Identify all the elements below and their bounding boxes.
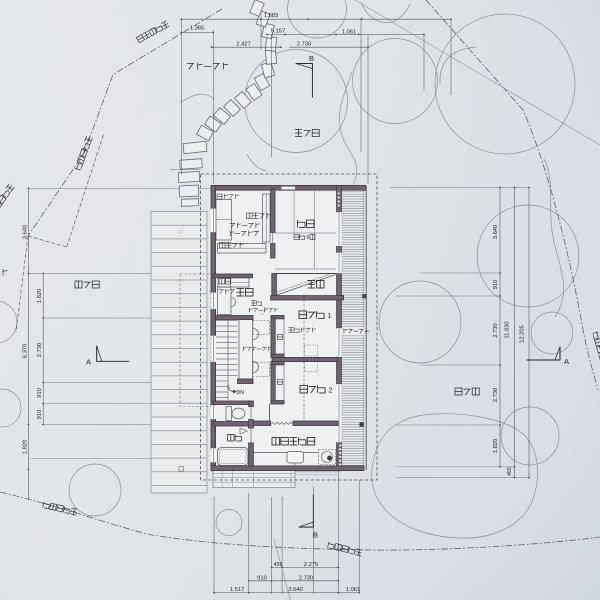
svg-text:1.683: 1.683 bbox=[264, 13, 279, 19]
svg-text:1.517: 1.517 bbox=[230, 587, 245, 593]
svg-text:1.061: 1.061 bbox=[346, 587, 361, 593]
svg-text:910: 910 bbox=[37, 388, 43, 398]
svg-text:2.275: 2.275 bbox=[304, 562, 319, 568]
svg-text:A: A bbox=[564, 357, 569, 366]
svg-text:1.820: 1.820 bbox=[37, 289, 43, 304]
svg-text:910: 910 bbox=[493, 280, 499, 290]
svg-text:B: B bbox=[313, 531, 318, 540]
svg-text:2.730: 2.730 bbox=[37, 343, 43, 358]
svg-text:1.820: 1.820 bbox=[493, 439, 499, 454]
svg-text:2.730: 2.730 bbox=[493, 388, 499, 403]
svg-text:3.640: 3.640 bbox=[23, 225, 29, 240]
svg-text:5.157: 5.157 bbox=[271, 29, 286, 35]
svg-text:12.205: 12.205 bbox=[520, 325, 526, 343]
svg-text:910: 910 bbox=[257, 575, 267, 581]
svg-text:1.061: 1.061 bbox=[342, 30, 357, 36]
svg-text:6: 6 bbox=[307, 235, 310, 241]
svg-text:2.730: 2.730 bbox=[299, 575, 314, 581]
svg-text:455: 455 bbox=[507, 467, 513, 476]
svg-text:3.640: 3.640 bbox=[288, 587, 303, 593]
svg-text:3.640: 3.640 bbox=[493, 225, 499, 240]
svg-text:11.830: 11.830 bbox=[505, 321, 511, 338]
svg-text:2.730: 2.730 bbox=[493, 323, 499, 338]
svg-text:B: B bbox=[309, 54, 314, 63]
svg-text:6.370: 6.370 bbox=[23, 344, 29, 359]
svg-text:1: 1 bbox=[328, 313, 332, 320]
svg-text:455: 455 bbox=[274, 562, 283, 568]
svg-text:DN: DN bbox=[237, 390, 245, 396]
svg-text:910: 910 bbox=[37, 410, 43, 420]
svg-text:1.820: 1.820 bbox=[23, 440, 29, 455]
svg-text:A: A bbox=[86, 358, 91, 367]
svg-text:2.730: 2.730 bbox=[297, 42, 312, 48]
svg-text:2.427: 2.427 bbox=[236, 42, 251, 48]
svg-text:2: 2 bbox=[329, 388, 333, 395]
svg-text:1.365: 1.365 bbox=[190, 26, 205, 32]
svg-text:::: :: bbox=[179, 229, 182, 235]
